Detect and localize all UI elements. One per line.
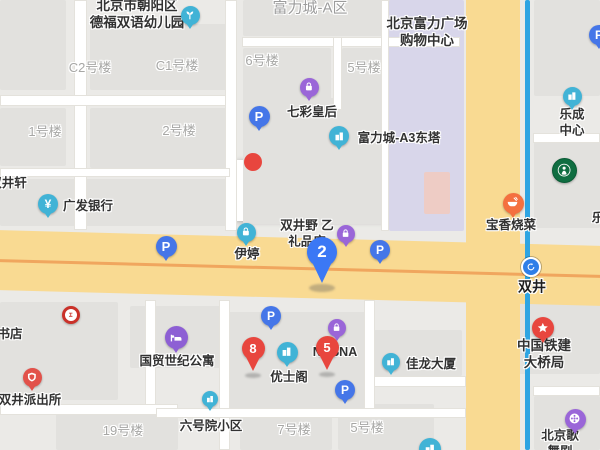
marker-pointer	[305, 95, 313, 101]
road-center-line	[0, 259, 600, 278]
marker-pointer	[342, 241, 350, 247]
street	[333, 37, 342, 110]
marker-parking-3[interactable]: P	[156, 236, 177, 257]
street	[0, 168, 230, 177]
label-le-clipped[interactable]: 乐	[592, 211, 600, 227]
bag-icon	[340, 228, 351, 239]
label-fulicheng-a-qu: 富力城-A区	[272, 0, 347, 18]
label-liuhaoyuan[interactable]: 六号院小区	[180, 419, 243, 435]
label-c2-building: C2号楼	[69, 60, 112, 76]
starbucks-siren-icon	[557, 163, 571, 177]
label-lecheng-center[interactable]: 乐成中心	[558, 107, 586, 138]
marker-clipped-bottom[interactable]	[419, 438, 441, 450]
marker-yiting[interactable]	[237, 223, 256, 242]
building-block	[424, 172, 450, 214]
label-no6-building: 6号楼	[245, 53, 278, 69]
label-no5-building-bottom: 5号楼	[350, 420, 383, 436]
building-icon	[333, 130, 345, 142]
street	[533, 386, 600, 396]
label-guangfa-bank[interactable]: 广发银行	[63, 199, 113, 215]
marker-qicai-shop[interactable]	[300, 78, 319, 97]
building-icon	[566, 90, 578, 102]
marker-pointer	[539, 337, 547, 343]
bag-icon	[331, 322, 342, 333]
label-no7-building: 7号楼	[277, 422, 310, 438]
marker-pointer	[28, 385, 36, 391]
marker-baoxiang-restaurant[interactable]	[503, 193, 524, 214]
marker-parking-5[interactable]: P	[261, 306, 281, 326]
label-shuangjingxuan[interactable]: 双井轩	[0, 176, 27, 192]
building-icon	[423, 442, 437, 450]
marker-parking-1[interactable]: P	[249, 106, 270, 127]
label-shuangjing-station[interactable]: 双井	[518, 278, 546, 296]
pin-tail	[313, 264, 331, 283]
pin-result-2[interactable]: 2	[307, 237, 337, 284]
sprout-icon	[184, 9, 196, 21]
pin-tail	[320, 356, 334, 370]
icbc-bank-icon	[67, 311, 74, 318]
marker-guomao-hotel[interactable]	[165, 326, 188, 349]
map-canvas[interactable]: 广渠门外大街 北京市朝阳区 德福双语幼儿园富力城-A区北京富力广场 购物中心C2…	[0, 0, 600, 450]
marker-pointer	[387, 369, 395, 375]
building-block	[534, 0, 600, 96]
pin-clipped-by-box	[244, 153, 262, 171]
marker-pointer	[595, 43, 600, 49]
label-no2-building: 2号楼	[162, 123, 195, 139]
street	[0, 95, 230, 106]
star-icon	[536, 321, 550, 335]
building-icon	[280, 345, 293, 358]
label-tiejian-bridge[interactable]: 中国铁建大桥局	[516, 338, 572, 372]
pin-head: 2	[307, 237, 337, 267]
marker-gewuju-theater[interactable]	[565, 409, 586, 430]
street	[74, 0, 87, 230]
pin-result-8[interactable]: 8	[242, 337, 265, 373]
marker-tiejian-bridge[interactable]	[532, 317, 554, 339]
marker-pointer	[255, 125, 263, 131]
marker-pointer	[186, 23, 194, 29]
marker-starbucks[interactable]	[552, 158, 577, 183]
label-yiting[interactable]: 伊婷	[234, 247, 259, 263]
parking-p-icon: P	[267, 309, 275, 323]
street	[145, 300, 156, 405]
subway-loop-icon	[526, 262, 536, 272]
police-badge-icon	[26, 371, 38, 383]
parking-p-icon: P	[595, 28, 600, 42]
building-block	[534, 142, 600, 228]
marker-parking-entrance[interactable]: P	[335, 380, 355, 400]
parking-p-icon: P	[341, 383, 349, 397]
marker-jialong-tower[interactable]	[382, 353, 400, 371]
label-bookstore[interactable]: 书店	[0, 327, 23, 343]
marker-pointer	[341, 398, 349, 404]
restaurant-bowl-icon	[506, 196, 519, 209]
street	[156, 408, 466, 418]
marker-police-station[interactable]	[23, 368, 42, 387]
street	[364, 300, 375, 412]
label-jialong-tower[interactable]: 佳龙大厦	[406, 357, 456, 373]
parking-p-icon: P	[376, 243, 384, 257]
bed-icon	[169, 330, 183, 344]
marker-pointer	[44, 212, 52, 218]
marker-pointer	[335, 144, 343, 150]
marker-shuangjing-station[interactable]	[521, 257, 541, 277]
label-shuangjing-police[interactable]: 双井派出所	[0, 393, 61, 409]
marker-pointer	[162, 255, 170, 261]
street	[374, 376, 466, 387]
marker-lipin-shop[interactable]	[337, 225, 355, 243]
marker-icbc-bank[interactable]	[62, 306, 80, 324]
label-no1-building: 1号楼	[28, 124, 61, 140]
marker-liuhaoyuan[interactable]	[202, 391, 218, 407]
film-reel-icon	[568, 412, 581, 425]
marker-pointer	[242, 240, 250, 246]
marker-kindergarten[interactable]	[181, 6, 200, 25]
pin-result-5[interactable]: 5	[316, 336, 339, 372]
marker-pointer	[568, 104, 576, 110]
bag-icon	[240, 226, 252, 238]
marker-pointer	[509, 212, 517, 218]
marker-pointer	[283, 361, 291, 367]
marker-pointer	[206, 405, 214, 411]
pin-shadow	[319, 372, 335, 377]
label-fulicheng-a3[interactable]: 富力城-A3东塔	[358, 131, 441, 147]
building-block	[0, 302, 118, 400]
marker-pointer	[172, 347, 180, 353]
label-fuli-plaza-mall[interactable]: 北京富力广场 购物中心	[387, 16, 468, 50]
yen-icon: ¥	[45, 197, 52, 211]
label-c1-building: C1号楼	[156, 58, 199, 74]
label-baoxiang-shaocai[interactable]: 宝香烧菜	[486, 218, 536, 234]
parking-p-icon: P	[162, 239, 171, 254]
bag-icon	[303, 81, 315, 93]
building-block	[0, 179, 229, 226]
marker-pointer	[267, 324, 275, 330]
marker-youshige[interactable]	[277, 342, 298, 363]
label-no19-building: 19号楼	[103, 423, 143, 439]
pin-shadow	[245, 373, 261, 378]
label-no5-building-top: 5号楼	[347, 60, 380, 76]
label-youshige[interactable]: 优士阁	[270, 370, 308, 386]
pin-tail	[246, 357, 260, 371]
parking-p-icon: P	[255, 109, 264, 124]
marker-pointer	[376, 258, 384, 264]
marker-parking-4[interactable]: P	[370, 240, 390, 260]
marker-guangfa-bank[interactable]: ¥	[38, 194, 58, 214]
street	[225, 0, 237, 231]
building-block	[90, 108, 230, 168]
label-qicai-huanghou[interactable]: 七彩皇后	[287, 105, 337, 121]
pin-shadow	[309, 284, 335, 292]
marker-pointer	[571, 428, 579, 434]
marker-lecheng-center[interactable]	[563, 87, 582, 106]
label-defu-kindergarten[interactable]: 北京市朝阳区 德福双语幼儿园	[90, 0, 185, 32]
building-block	[0, 0, 66, 90]
label-guomao-apartment[interactable]: 国贸世纪公寓	[139, 354, 214, 370]
marker-fulicheng-a3[interactable]	[329, 126, 349, 146]
marker-bag-shop-2[interactable]	[328, 319, 346, 337]
building-icon	[385, 356, 396, 367]
building-icon	[205, 394, 215, 404]
